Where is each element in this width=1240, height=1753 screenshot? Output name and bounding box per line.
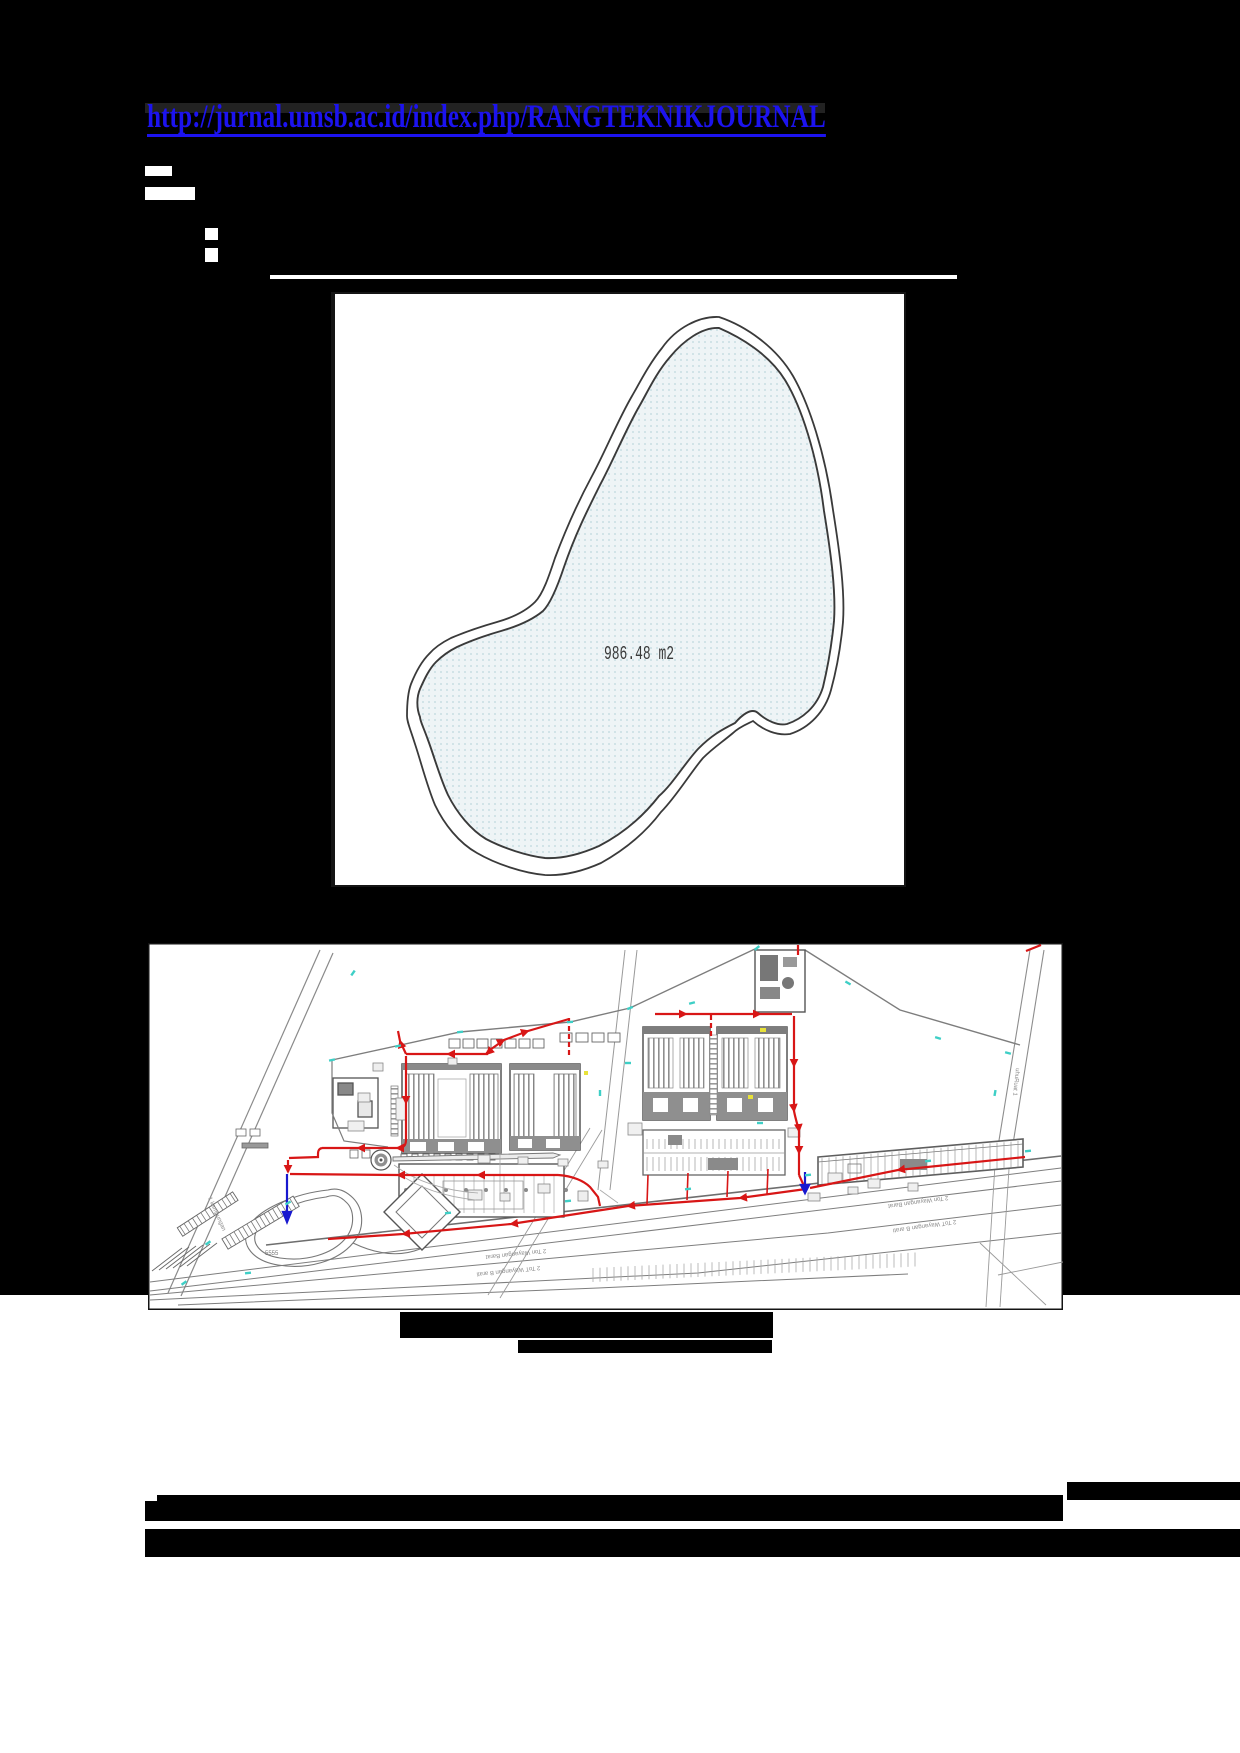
svg-text:5555: 5555: [265, 1251, 279, 1257]
svg-text:986.48 m2: 986.48 m2: [604, 643, 674, 665]
